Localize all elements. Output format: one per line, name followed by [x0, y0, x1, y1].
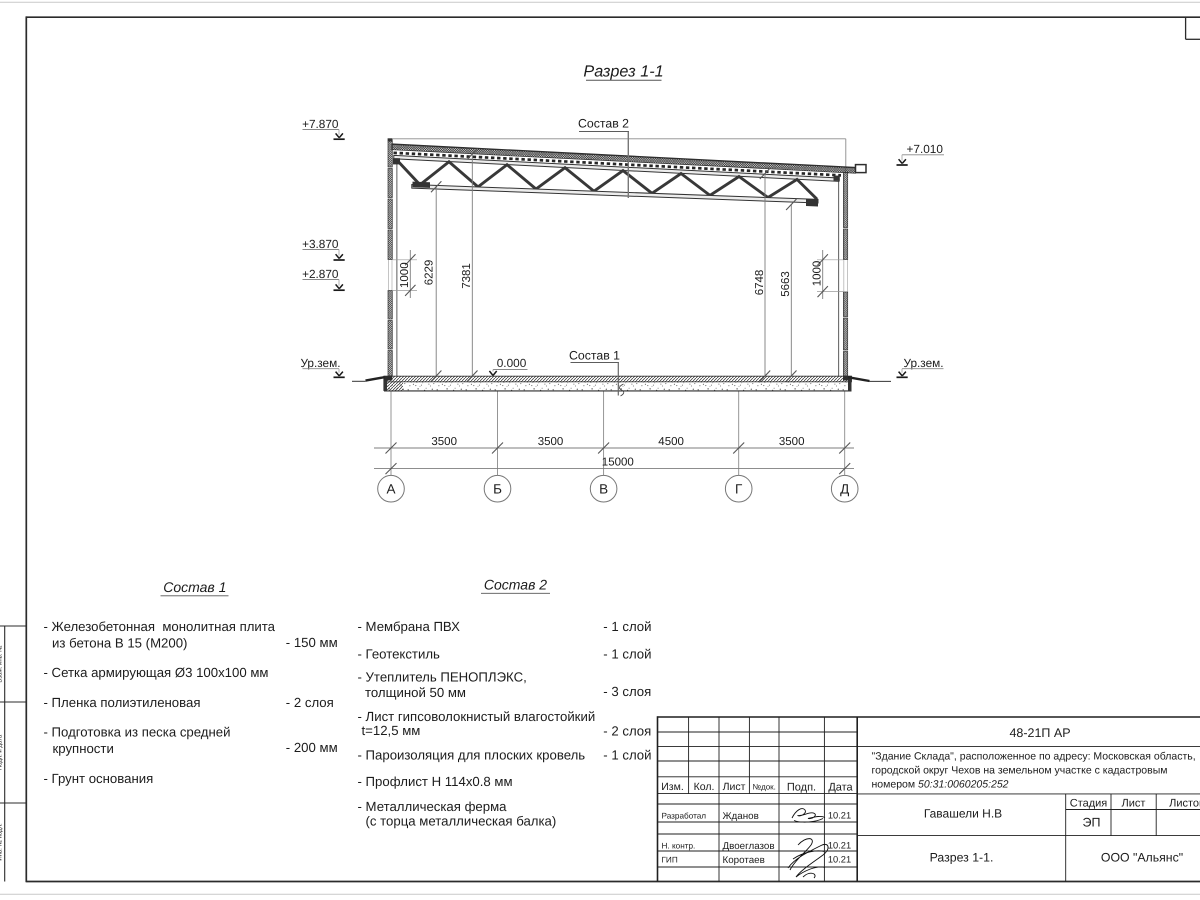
svg-text:4500: 4500: [658, 436, 684, 448]
svg-text:Подп. и дата: Подп. и дата: [0, 734, 3, 770]
svg-text:t=12,5 мм: t=12,5 мм: [362, 723, 421, 738]
svg-text:- 200 мм: - 200 мм: [286, 740, 338, 755]
svg-text:В: В: [599, 482, 608, 497]
svg-text:- 1 слой: - 1 слой: [603, 748, 651, 763]
svg-text:- 3 слоя: - 3 слоя: [603, 684, 651, 699]
svg-text:Лист: Лист: [1122, 798, 1146, 810]
svg-text:Лист: Лист: [723, 781, 746, 793]
svg-text:Инв. № подл.: Инв. № подл.: [0, 823, 3, 861]
svg-text:0.000: 0.000: [497, 356, 527, 370]
svg-text:ГИП: ГИП: [662, 856, 678, 865]
svg-text:Коротаев: Коротаев: [723, 855, 765, 866]
svg-text:10.21: 10.21: [828, 841, 851, 851]
svg-text:Состав 1: Состав 1: [569, 348, 620, 362]
svg-text:- Утеплитель ПЕНОПЛЭКС,: - Утеплитель ПЕНОПЛЭКС,: [358, 670, 527, 685]
svg-text:Стадия: Стадия: [1070, 798, 1108, 810]
svg-text:- Железобетонная монолитная п: - Железобетонная монолитная плита: [44, 619, 276, 634]
svg-text:Подп.: Подп.: [787, 782, 816, 794]
svg-text:6748: 6748: [754, 270, 766, 296]
svg-text:Изм.: Изм.: [661, 781, 684, 793]
svg-text:Разрез 1-1: Разрез 1-1: [583, 63, 663, 81]
svg-text:- Сетка армирующая Ø3 100х100: - Сетка армирующая Ø3 100х100 мм: [44, 665, 269, 680]
svg-text:ЭП: ЭП: [1083, 816, 1101, 830]
svg-text:1000: 1000: [811, 261, 823, 287]
svg-text:10.21: 10.21: [828, 855, 851, 865]
svg-text:3500: 3500: [779, 436, 805, 448]
svg-text:+7.010: +7.010: [907, 142, 944, 156]
svg-text:3500: 3500: [538, 436, 564, 448]
svg-text:+7.870: +7.870: [302, 117, 339, 131]
svg-text:- Подготовка из песка средней: - Подготовка из песка средней: [44, 725, 231, 740]
svg-text:Жданов: Жданов: [723, 811, 759, 822]
svg-text:+3.870: +3.870: [302, 237, 339, 251]
svg-text:1000: 1000: [399, 262, 411, 288]
svg-text:крупности: крупности: [53, 741, 114, 756]
svg-text:Г: Г: [735, 482, 743, 497]
svg-text:15000: 15000: [602, 457, 634, 469]
svg-text:10.21: 10.21: [828, 811, 851, 821]
svg-text:7381: 7381: [461, 263, 473, 289]
svg-text:Б: Б: [493, 482, 502, 497]
svg-text:- 2 слоя: - 2 слоя: [286, 695, 334, 710]
svg-text:толщиной 50 мм: толщиной 50 мм: [365, 685, 466, 700]
svg-text:Разрез 1-1.: Разрез 1-1.: [930, 851, 994, 865]
svg-text:Ур.зем.: Ур.зем.: [904, 356, 944, 370]
svg-text:- 150 мм: - 150 мм: [286, 635, 338, 650]
svg-text:- 2 слоя: - 2 слоя: [603, 724, 651, 739]
svg-text:Д: Д: [840, 482, 849, 497]
svg-text:номером 50:31:0060205:252: номером 50:31:0060205:252: [872, 779, 1009, 791]
svg-text:- 1 слой: - 1 слой: [603, 647, 651, 662]
svg-text:- Профлист Н 114х0.8 мм: - Профлист Н 114х0.8 мм: [358, 774, 513, 789]
svg-text:- Геотекстиль: - Геотекстиль: [358, 647, 441, 662]
svg-text:- Мембрана ПВХ: - Мембрана ПВХ: [358, 619, 461, 634]
svg-text:Дата: Дата: [828, 782, 853, 794]
svg-text:Состав 2: Состав 2: [578, 116, 629, 130]
svg-text:Н. контр.: Н. контр.: [662, 842, 696, 851]
svg-text:"Здание Склада", расположенное: "Здание Склада", расположенное по адресу…: [872, 751, 1196, 763]
svg-text:48-21П АР: 48-21П АР: [1009, 726, 1070, 740]
svg-text:- Пленка полиэтиленовая: - Пленка полиэтиленовая: [44, 695, 201, 710]
svg-text:Разработал: Разработал: [662, 812, 707, 821]
svg-text:Ур.зем.: Ур.зем.: [300, 356, 340, 370]
svg-text:- Грунт основания: - Грунт основания: [44, 771, 154, 786]
svg-text:Взам. инв. №: Взам. инв. №: [0, 645, 3, 683]
svg-text:Листов: Листов: [1169, 798, 1200, 810]
svg-text:- Металлическая ферма: - Металлическая ферма: [358, 799, 508, 814]
svg-text:городской округ Чехов на земел: городской округ Чехов на земельном участ…: [872, 765, 1168, 777]
svg-text:А: А: [386, 482, 395, 497]
svg-text:Состав 2: Состав 2: [484, 576, 547, 592]
svg-text:Состав 1: Состав 1: [163, 579, 226, 595]
svg-text:из бетона В 15 (М200): из бетона В 15 (М200): [52, 635, 187, 650]
svg-text:(с торца металлическая балка): (с торца металлическая балка): [366, 814, 557, 829]
svg-text:ООО "Альянс": ООО "Альянс": [1101, 851, 1183, 865]
svg-text:Двоеглазов: Двоеглазов: [723, 841, 775, 852]
svg-text:6229: 6229: [424, 260, 436, 286]
svg-text:- Пароизоляция для плоских кро: - Пароизоляция для плоских кровель: [358, 748, 586, 763]
svg-text:№док.: №док.: [752, 783, 775, 792]
svg-text:Гавашели Н.В: Гавашели Н.В: [924, 807, 1002, 821]
svg-text:- 1 слой: - 1 слой: [603, 619, 651, 634]
svg-text:5663: 5663: [780, 271, 792, 297]
svg-text:+2.870: +2.870: [302, 267, 339, 281]
svg-text:3500: 3500: [431, 436, 457, 448]
svg-text:Кол.: Кол.: [694, 781, 715, 793]
